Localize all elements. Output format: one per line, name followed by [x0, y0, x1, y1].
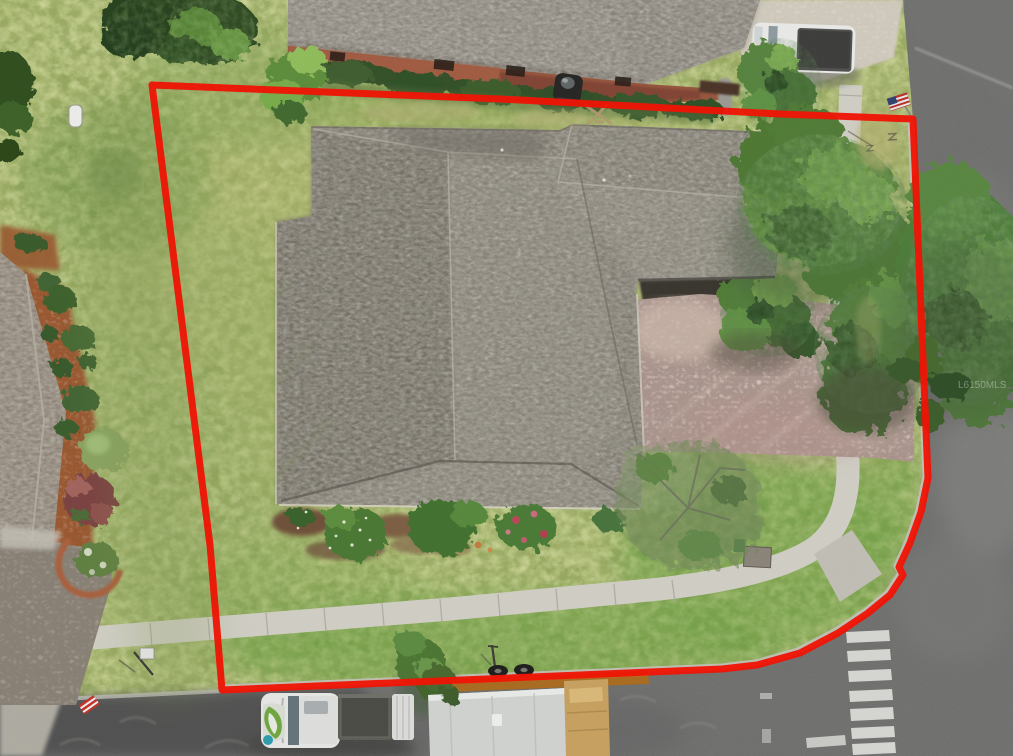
svg-text:L6150MLS: L6150MLS [958, 380, 1007, 391]
